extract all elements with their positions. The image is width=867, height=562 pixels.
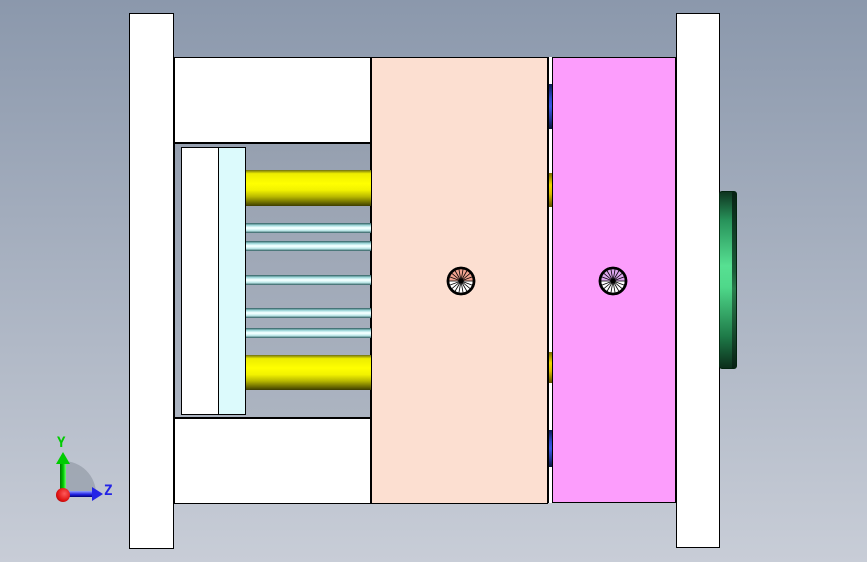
screw-end-view-icon[interactable] xyxy=(444,264,478,298)
z-axis-arrowhead-icon xyxy=(92,487,103,501)
ejector-pin[interactable] xyxy=(246,223,371,233)
locating-ring-edge xyxy=(732,192,736,368)
ejector-pin[interactable] xyxy=(246,328,371,338)
front-clamp-plate[interactable] xyxy=(676,13,720,548)
ejector-retainer-plate[interactable] xyxy=(218,147,246,415)
ejector-pin[interactable] xyxy=(246,241,371,251)
screw-end-view-icon[interactable] xyxy=(596,264,630,298)
guide-pin-bottom[interactable] xyxy=(246,355,371,390)
spacer-block-bottom[interactable] xyxy=(174,418,371,504)
x-axis-origin-dot-icon xyxy=(56,488,70,502)
orientation-triad: Y Z xyxy=(40,430,130,520)
ejector-pin[interactable] xyxy=(246,308,371,318)
y-axis-label: Y xyxy=(57,436,65,450)
ejector-plate[interactable] xyxy=(181,147,219,415)
guide-pin-top[interactable] xyxy=(246,170,371,206)
spacer-block-top[interactable] xyxy=(174,57,371,143)
rear-clamp-plate[interactable] xyxy=(129,13,174,549)
cad-3d-viewport[interactable]: Y Z xyxy=(0,0,867,562)
y-axis-arrowhead-icon xyxy=(56,452,70,464)
locating-ring[interactable] xyxy=(719,191,737,369)
z-axis-label: Z xyxy=(104,484,112,498)
ejector-pin[interactable] xyxy=(246,275,371,285)
